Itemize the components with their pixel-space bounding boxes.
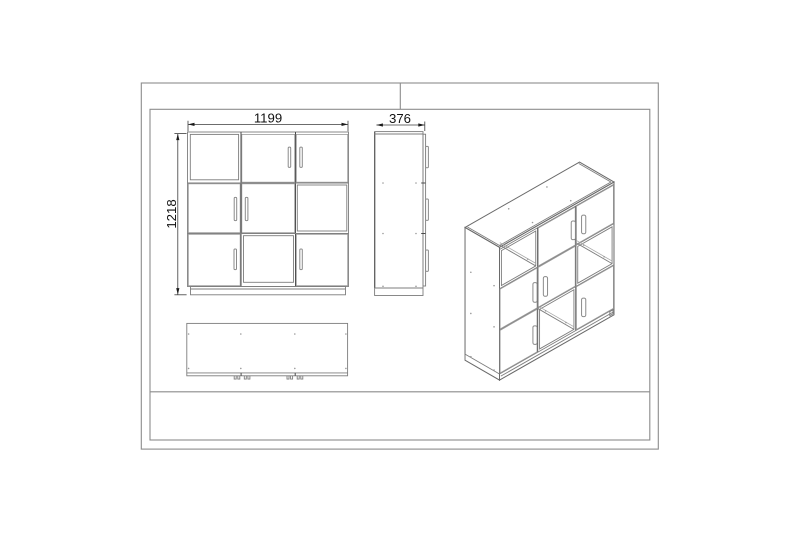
svg-text:376: 376: [389, 111, 411, 126]
svg-text:1218: 1218: [164, 199, 179, 228]
svg-text:1199: 1199: [254, 111, 282, 126]
